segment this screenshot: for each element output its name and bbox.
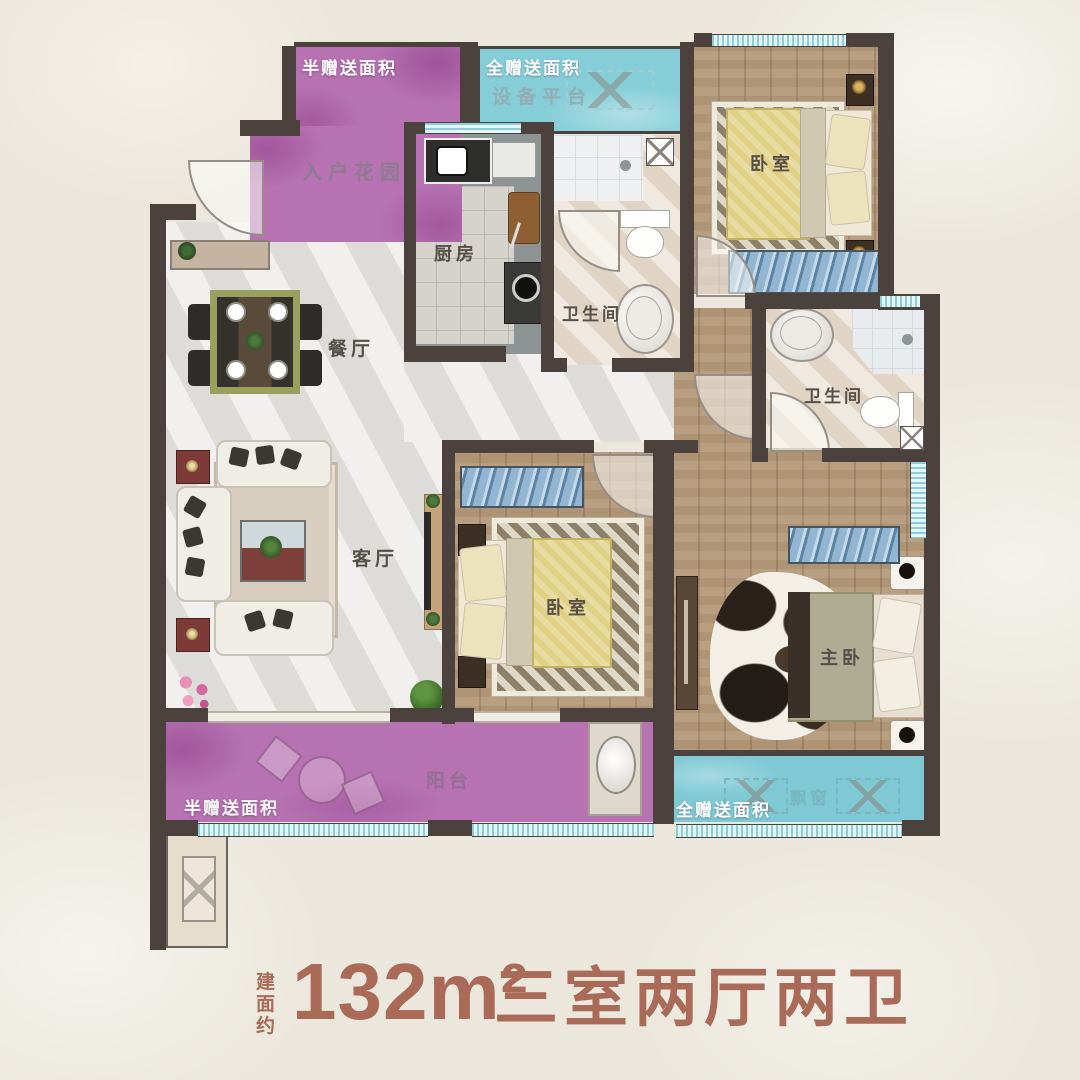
bathroom-right-label: 卫生间 <box>804 382 864 407</box>
wall-bedroom-middle-left <box>442 452 455 724</box>
bedroom-tr-label: 卧室 <box>750 150 794 176</box>
kitchen-top-window <box>424 123 522 133</box>
bedroom-middle-bed-fold <box>506 538 534 666</box>
equipment-platform-label: 设备平台 <box>492 82 592 109</box>
bedroom-middle-pillow-2 <box>459 602 506 660</box>
duct-x-icon <box>647 139 673 165</box>
title-area-value: 132m² <box>292 952 528 1032</box>
wall-bay-bottom-stub <box>902 820 940 836</box>
dining-plate-4 <box>268 360 288 380</box>
bathroom-top-label: 卫生间 <box>562 300 622 325</box>
master-lamp-2 <box>899 727 915 743</box>
sofa-chaise-bottom <box>214 600 334 656</box>
wall-bath-top-bottom-b <box>612 358 694 372</box>
wall-balcony-top-b <box>390 708 474 722</box>
bedroom-middle-nightstand-2 <box>458 656 486 688</box>
wall-bath-right-left <box>752 294 766 462</box>
bay-x-icon-2 <box>838 780 898 812</box>
bedroom-middle-label: 卧室 <box>546 594 590 620</box>
bath-right-top-window <box>880 295 920 308</box>
sink-right-basin <box>780 316 822 350</box>
bedroom-tr-pillow-2 <box>825 170 870 226</box>
wall-bedroom-middle-top-a <box>442 440 594 453</box>
wall-balcony-right <box>653 708 674 824</box>
bedroom-tr-top-window <box>712 34 846 47</box>
master-right-window <box>910 462 927 538</box>
wall-garden-platform-block <box>460 42 478 134</box>
dining-plate-3 <box>226 360 246 380</box>
wall-bottom-a <box>150 820 198 836</box>
dining-room-label: 餐厅 <box>328 334 374 361</box>
wall-outer-right <box>924 294 940 824</box>
wall-garden-top <box>294 42 464 47</box>
kitchen-burner <box>512 274 540 302</box>
wall-bedroom-tr-right <box>878 42 894 310</box>
side-table-top-decor <box>186 460 198 472</box>
bedroom-tr-pillow-1 <box>825 113 872 170</box>
living-balcony-sliding-door <box>208 711 390 723</box>
bedroom-tr-lamp-1 <box>852 80 866 94</box>
side-table-bottom-decor <box>186 628 198 640</box>
master-bedroom-label: 主卧 <box>820 644 864 670</box>
wall-entry-stub <box>150 204 196 220</box>
elevator-x-icon <box>184 858 214 920</box>
kitchen-drainboard <box>492 142 536 178</box>
bedroom-balcony-sliding-door <box>474 711 560 723</box>
platform-gift-label: 全赠送面积 <box>486 54 581 79</box>
bedroom-middle-wardrobe <box>460 466 584 508</box>
console-plant-top <box>426 494 440 508</box>
shower-head-right <box>902 334 913 345</box>
bedroom-middle-pillow-1 <box>459 544 507 603</box>
wall-bath-top-bottom-a <box>541 358 567 372</box>
shower-head-top <box>620 160 631 171</box>
elevator-car <box>182 856 216 922</box>
master-lamp-1 <box>899 563 915 579</box>
living-room-label: 客厅 <box>352 544 398 571</box>
console-plant-bottom <box>426 612 440 626</box>
title-prefix-vertical: 建面约 <box>256 972 278 1038</box>
entrance-garden-label: 入户花园 <box>302 156 406 185</box>
wall-master-top-stub <box>674 440 698 453</box>
wall-bedroom-tr-top-left <box>694 33 712 47</box>
dining-centerpiece-plant <box>246 332 264 350</box>
kitchen-label: 厨房 <box>434 240 478 266</box>
master-dresser-handle <box>684 600 688 684</box>
wall-balcony-top-a <box>150 708 208 722</box>
balcony-bottom-window-b <box>472 823 654 837</box>
coffee-table-plant <box>260 536 282 558</box>
master-pillow-2 <box>873 655 922 712</box>
sofa-top-pillow-1 <box>228 446 249 467</box>
wall-left-spine <box>150 218 166 950</box>
wall-bath-right-bottom-b <box>822 448 926 462</box>
tv-screen <box>424 512 431 610</box>
wall-bath-top-right-spine <box>680 42 694 366</box>
bay-window-label: 飘窗 <box>790 784 830 809</box>
balcony-gift-label: 半赠送面积 <box>184 794 279 819</box>
duct-shaft-right <box>900 426 924 450</box>
dining-plate-2 <box>268 302 288 322</box>
sofa-left-pillow-3 <box>185 557 206 578</box>
master-wardrobe <box>788 526 900 564</box>
bay-bottom-window <box>676 824 902 838</box>
bay-gift-label: 全赠送面积 <box>676 796 771 821</box>
master-bed-runner <box>788 592 810 718</box>
title-layout-text: 三室两厅两卫 <box>494 966 914 1030</box>
wall-kitchen-bottom <box>404 346 506 362</box>
toilet-right-bowl <box>860 396 900 428</box>
wall-balcony-top-c <box>560 708 655 722</box>
sink-top-basin <box>626 296 662 340</box>
master-pillow-1 <box>872 597 922 656</box>
kitchen-sink-basin <box>436 146 468 176</box>
bedroom-tr-bed-fold <box>800 108 826 238</box>
bay-ac-unit-2 <box>836 778 900 814</box>
floor-plan-poster: 半赠送面积 全赠送面积 设备平台 入户花园 厨房 卫生间 卧室 餐厅 卫生间 客… <box>0 0 1080 1080</box>
wall-kitchen-right <box>541 128 554 368</box>
balcony-sink <box>596 736 636 794</box>
wall-bay-top-line <box>674 750 926 756</box>
duct-shaft-top <box>646 138 674 166</box>
garden-gift-label: 半赠送面积 <box>302 54 397 79</box>
wall-bedroom-middle-right <box>653 453 674 724</box>
balcony-label: 阳台 <box>426 766 472 793</box>
sofa-top-pillow-2 <box>255 445 275 465</box>
balcony-table <box>298 756 346 804</box>
wall-garden-left <box>282 46 296 126</box>
balcony-bottom-window-a <box>198 823 428 837</box>
toilet-top-bowl <box>626 226 664 258</box>
wall-bath-right-bottom-a <box>752 448 768 462</box>
dining-plate-1 <box>226 302 246 322</box>
sideboard-plant-icon <box>178 242 196 260</box>
duct-x-icon-2 <box>901 427 923 449</box>
wall-bottom-b <box>428 820 472 836</box>
